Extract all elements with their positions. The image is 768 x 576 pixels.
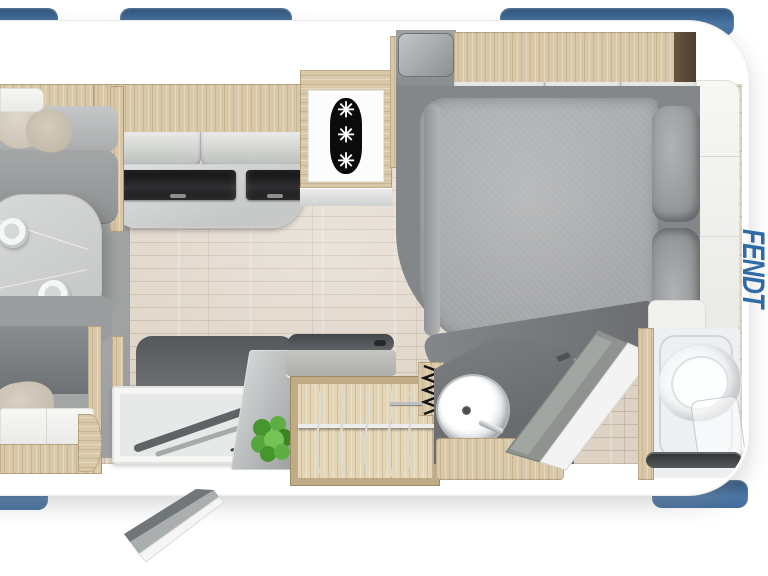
fridge-base-trim <box>300 188 392 206</box>
head-cabinet-door <box>398 33 454 77</box>
brand-logo-text: FENDT <box>735 229 768 307</box>
corner-wood-panel <box>674 32 696 84</box>
wardrobe-lid <box>286 350 396 378</box>
freezer-rating-icon: ✳ ✳ ✳ <box>330 98 362 174</box>
towel-bar <box>390 402 422 405</box>
fridge: ✳ ✳ ✳ <box>308 90 384 182</box>
freezer-star: ✳ <box>337 100 355 121</box>
shower-door-open <box>500 315 660 475</box>
hob-glass-cover <box>120 170 236 200</box>
overhead-cabinet-kitchen <box>94 84 304 134</box>
overhead-lockers-kitchen <box>96 132 304 168</box>
duvet-rolled-edge <box>424 104 440 336</box>
shower-tray-rail <box>646 452 742 468</box>
overhead-cabinet-bed <box>454 32 676 84</box>
brand-logo: FENDT <box>738 213 768 323</box>
caravan-floorplan-top-view: ✳ ✳ ✳ <box>0 0 768 576</box>
freezer-star: ✳ <box>337 125 355 146</box>
locker-door <box>201 132 305 168</box>
freezer-star: ✳ <box>337 151 355 172</box>
sink-glass-cover <box>246 170 304 200</box>
washbasin <box>438 376 508 444</box>
seat-chest-endcap <box>78 414 102 472</box>
wardrobe-hangers <box>296 384 438 480</box>
plant <box>248 414 294 462</box>
bed-pillow <box>652 106 700 222</box>
entry-door-open <box>110 480 240 576</box>
headrest-shelf <box>0 88 44 112</box>
kitchen-worktop <box>112 164 304 228</box>
